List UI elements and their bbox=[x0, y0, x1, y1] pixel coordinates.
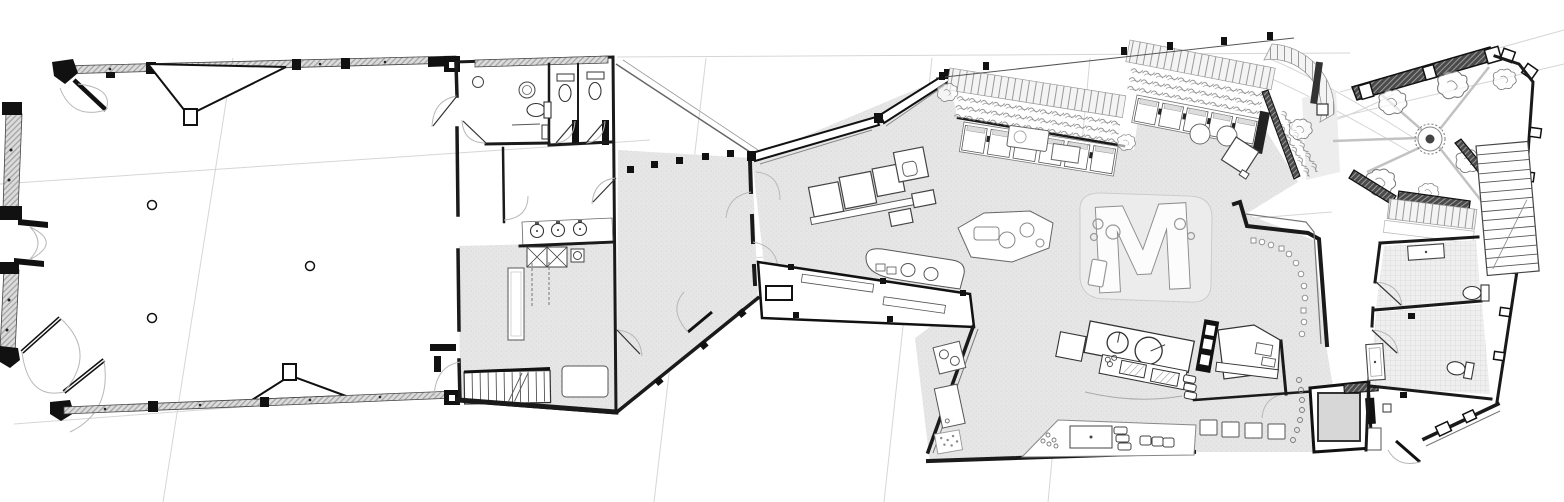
wall-pier bbox=[0, 262, 19, 274]
duct bbox=[1383, 404, 1391, 412]
wc-stalls bbox=[549, 64, 612, 145]
canopy-edge bbox=[623, 60, 758, 150]
bar-notch bbox=[766, 286, 792, 300]
hall-west-window-lower bbox=[0, 268, 19, 352]
service-north-window bbox=[475, 56, 608, 67]
wall-pier bbox=[0, 206, 22, 220]
table bbox=[562, 366, 608, 397]
vestibule bbox=[1310, 382, 1391, 452]
partition-wall bbox=[503, 148, 504, 222]
floor-plan-drawing: Architectural ground floor plan bbox=[0, 0, 1564, 502]
tree-icon bbox=[1493, 69, 1516, 89]
counter-box bbox=[1056, 332, 1086, 362]
toilet-icon bbox=[557, 74, 574, 102]
door-leaf bbox=[1396, 441, 1420, 462]
m-sculpture: M bbox=[1080, 180, 1212, 321]
pilaster bbox=[106, 72, 115, 78]
grab-bar bbox=[512, 124, 540, 125]
toilet-icon bbox=[527, 102, 551, 118]
pier-notch bbox=[449, 395, 455, 401]
mullion-dot bbox=[8, 179, 11, 182]
wall-pier bbox=[0, 346, 20, 368]
wall-pier bbox=[2, 102, 22, 115]
tree-icon bbox=[1438, 71, 1469, 98]
toilet-icon bbox=[587, 72, 604, 100]
wall-post bbox=[874, 113, 883, 123]
shrub-icon bbox=[1118, 135, 1136, 151]
wall-pier bbox=[341, 58, 350, 69]
hall-columns bbox=[148, 201, 315, 323]
shrub-icon bbox=[937, 83, 957, 101]
wall-stub bbox=[18, 219, 48, 228]
hall-west-window-upper bbox=[3, 112, 22, 212]
wall-nub bbox=[1408, 313, 1415, 319]
sink-icon bbox=[473, 77, 484, 88]
funnel-stem bbox=[184, 109, 197, 125]
round-table bbox=[1190, 124, 1210, 144]
tree-icon bbox=[1379, 90, 1407, 115]
basin-icon bbox=[519, 82, 535, 98]
mullion-dot bbox=[6, 329, 9, 332]
pier bbox=[1435, 422, 1451, 437]
funnel-pilaster-north bbox=[148, 64, 286, 111]
wall-nub bbox=[1400, 392, 1407, 398]
accessible-wc bbox=[462, 64, 551, 144]
garden-stairs bbox=[1476, 141, 1539, 275]
wash-counter bbox=[520, 218, 614, 247]
wc-floor-tile bbox=[1370, 304, 1490, 394]
funnel-stem bbox=[283, 364, 296, 380]
se-exit bbox=[1388, 404, 1500, 464]
tall-counter bbox=[508, 268, 524, 340]
wall-pier bbox=[292, 59, 301, 70]
drain-dot bbox=[1425, 251, 1427, 253]
toilet-icon bbox=[1463, 285, 1489, 301]
wall-pier bbox=[260, 397, 269, 407]
sink-icon bbox=[1366, 343, 1385, 380]
main-hall bbox=[0, 56, 460, 432]
floor-plan-canvas: Architectural ground floor plan bbox=[0, 0, 1564, 502]
mullion-dot bbox=[8, 299, 11, 302]
m-sculpture-text: M bbox=[1085, 180, 1202, 321]
lobby-floor bbox=[617, 150, 758, 412]
wall-post bbox=[747, 151, 756, 161]
wall-pier bbox=[148, 401, 158, 412]
pier-notch bbox=[449, 62, 455, 68]
pier bbox=[1317, 104, 1328, 115]
hall-east-wall bbox=[430, 64, 460, 400]
wall-cabinet bbox=[542, 125, 548, 139]
stairs-service bbox=[464, 368, 551, 403]
mullion-dot bbox=[10, 149, 13, 152]
